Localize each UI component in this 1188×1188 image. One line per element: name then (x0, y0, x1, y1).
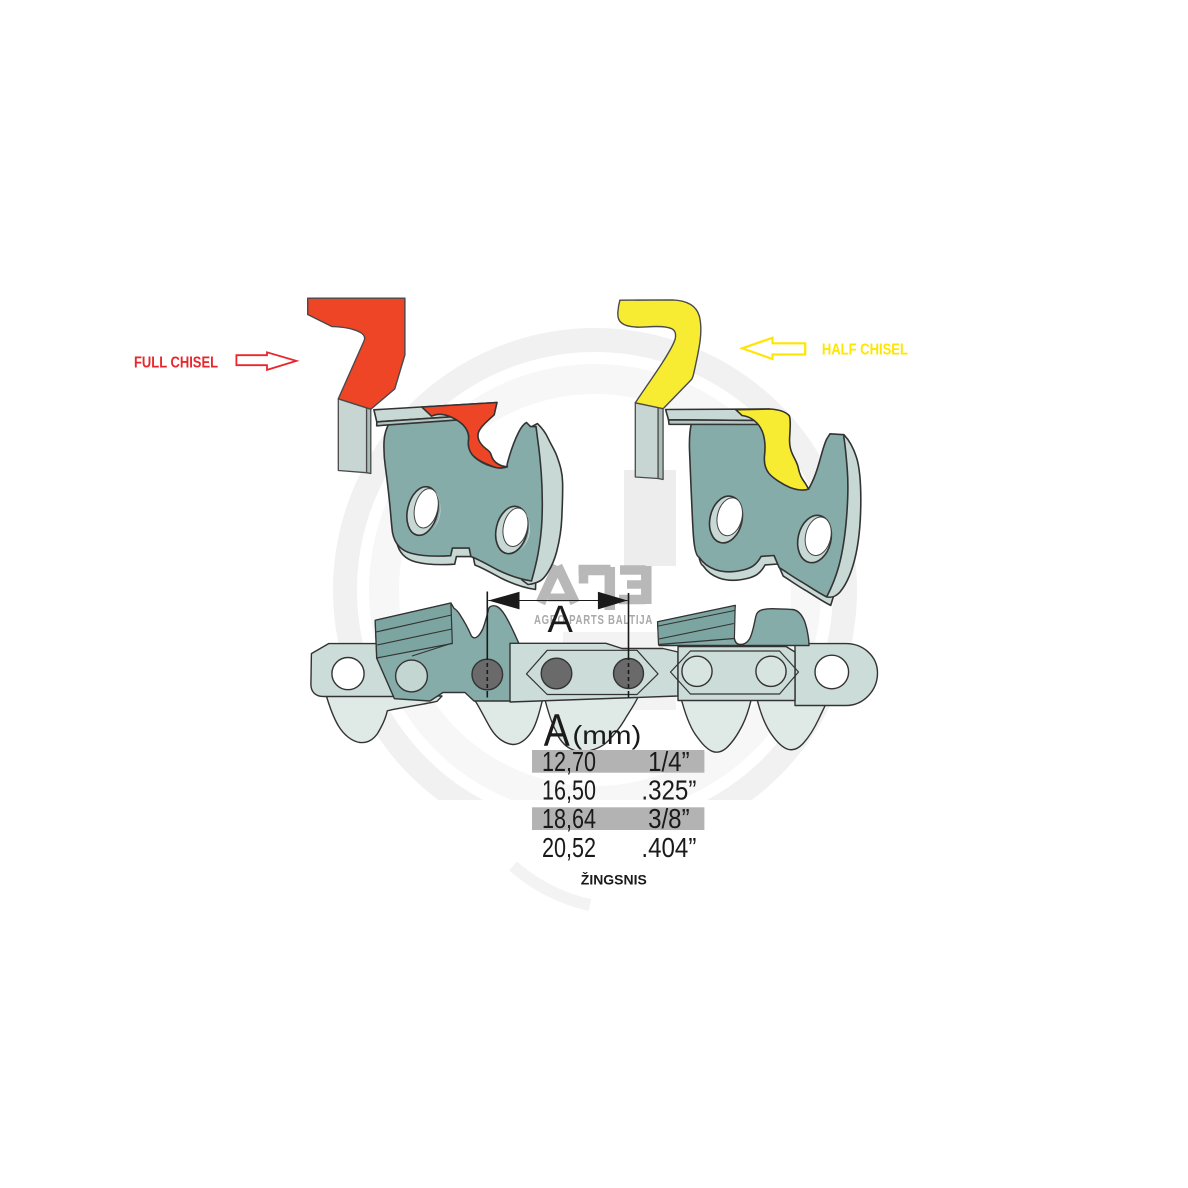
svg-text:A: A (548, 599, 574, 641)
svg-text:12,70: 12,70 (542, 746, 596, 777)
svg-text:FULL CHISEL: FULL CHISEL (134, 355, 218, 372)
svg-text:1/4”: 1/4” (648, 746, 690, 777)
svg-text:18,64: 18,64 (542, 803, 596, 834)
svg-text:HALF CHISEL: HALF CHISEL (822, 342, 908, 359)
svg-text:.325”: .325” (641, 775, 696, 806)
svg-text:3/8”: 3/8” (648, 803, 690, 834)
svg-text:16,50: 16,50 (542, 775, 596, 806)
svg-text:ŽINGSNIS: ŽINGSNIS (581, 871, 647, 888)
svg-text:.404”: .404” (641, 832, 696, 863)
svg-text:20,52: 20,52 (542, 832, 596, 863)
